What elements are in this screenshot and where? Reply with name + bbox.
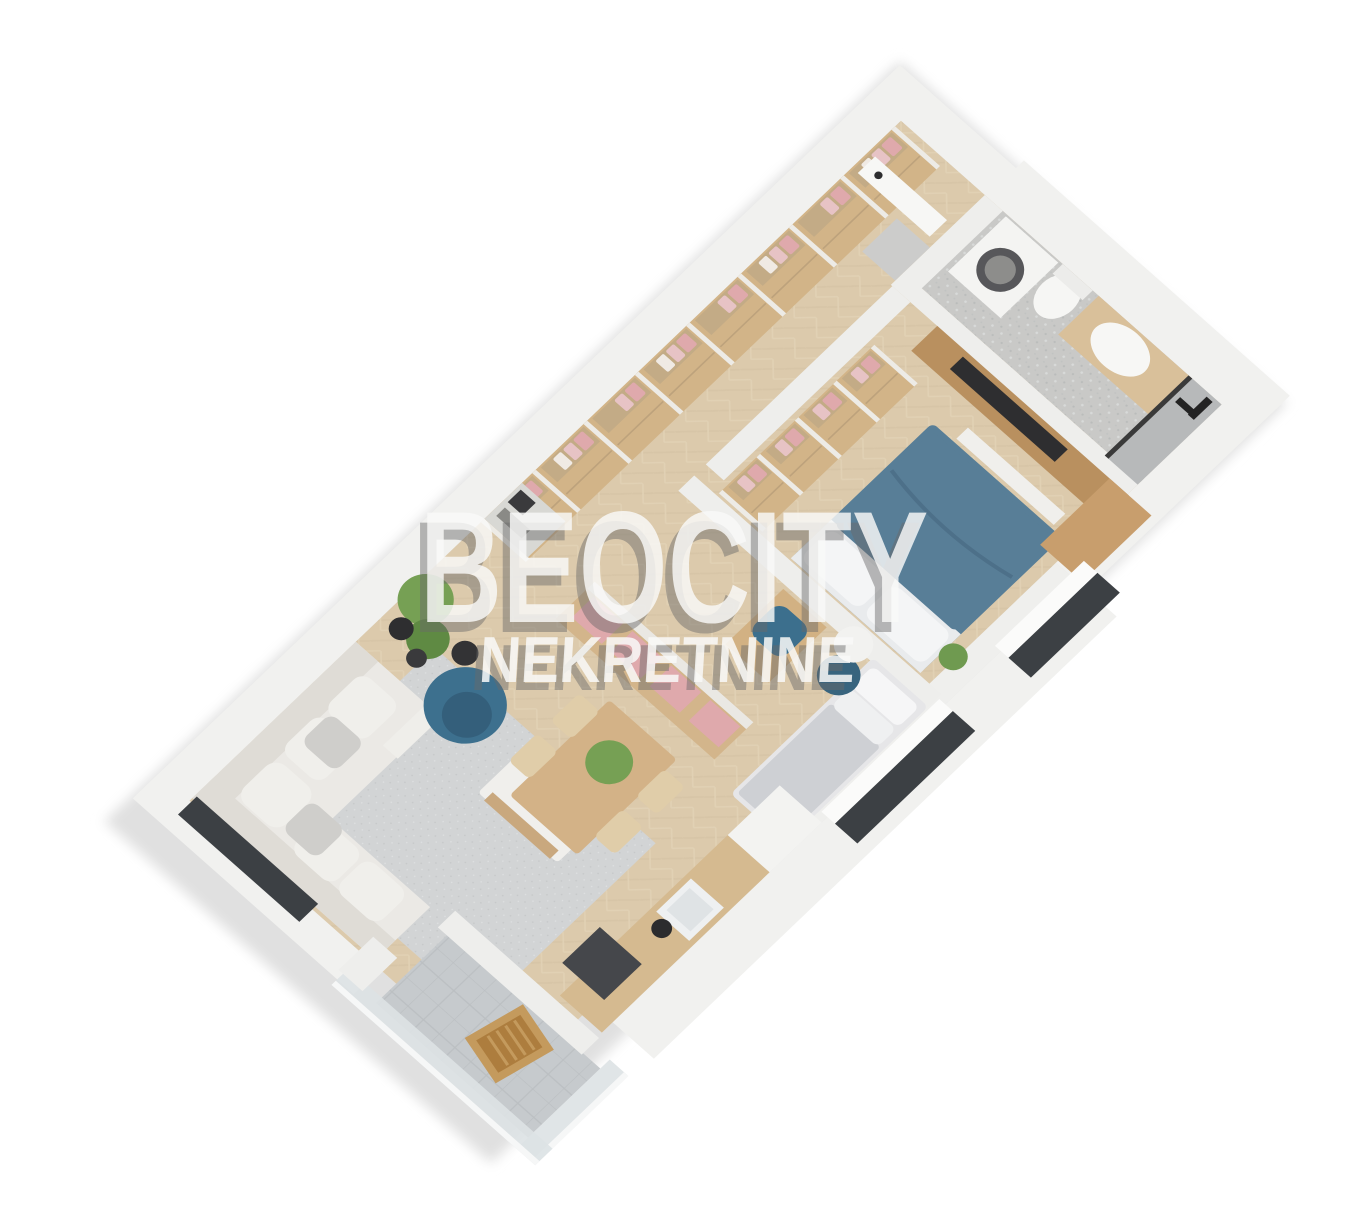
svg-text:NEKRETNINE: NEKRETNINE [477, 624, 857, 697]
